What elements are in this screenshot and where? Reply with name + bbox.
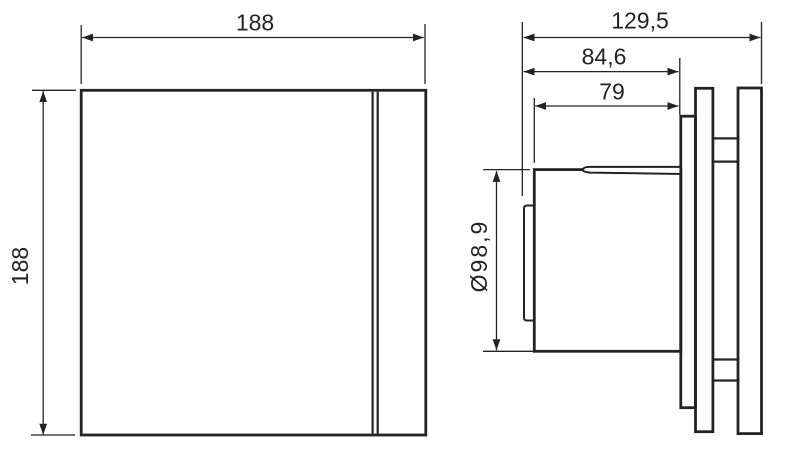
svg-text:79: 79 <box>599 79 625 105</box>
svg-text:129,5: 129,5 <box>611 8 669 34</box>
svg-text:188: 188 <box>7 247 33 285</box>
svg-text:Ø98,9: Ø98,9 <box>466 220 492 293</box>
svg-text:84,6: 84,6 <box>582 44 627 70</box>
svg-text:188: 188 <box>236 10 274 36</box>
